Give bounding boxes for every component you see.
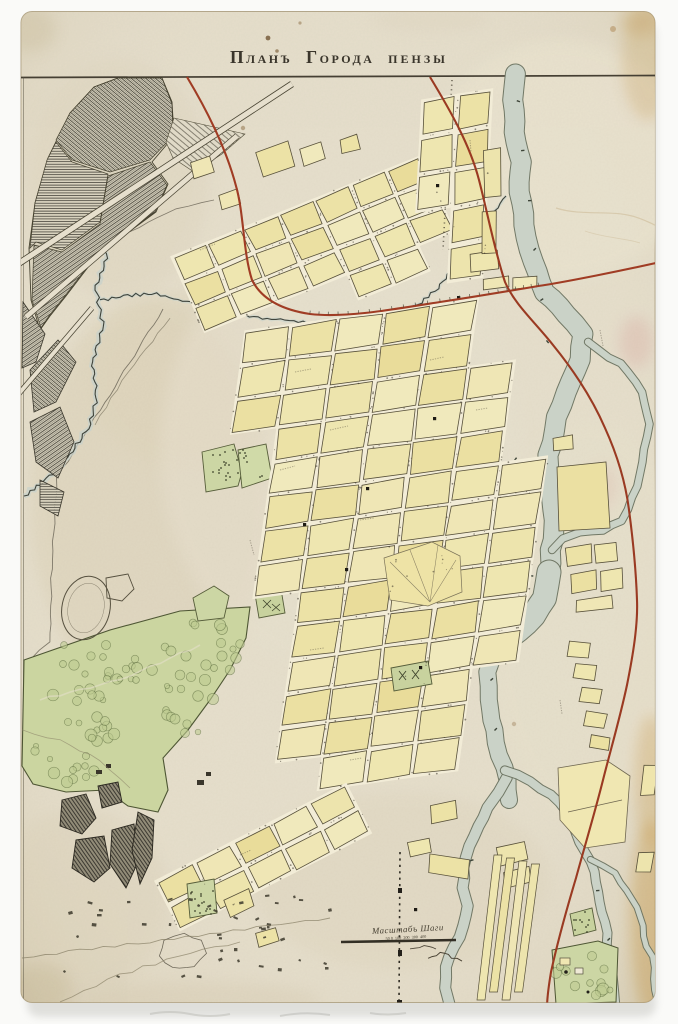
svg-text:Планъ Города пензы: Планъ Города пензы <box>230 47 448 67</box>
